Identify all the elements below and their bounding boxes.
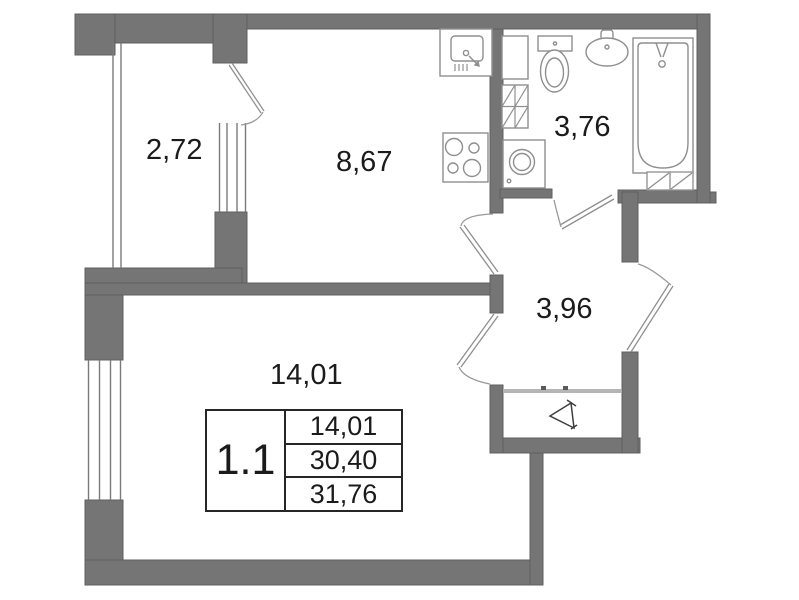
entrance-door bbox=[627, 264, 673, 352]
bathroom-area-label: 3,76 bbox=[554, 113, 610, 142]
wall-segment bbox=[85, 560, 543, 585]
living-room-window bbox=[89, 360, 121, 500]
kitchen-area-label: 8,67 bbox=[336, 148, 392, 177]
wall-segment bbox=[697, 14, 710, 203]
wall-segment bbox=[490, 438, 640, 453]
unit-area: 30,40 bbox=[286, 445, 401, 479]
wall-segment bbox=[500, 189, 552, 198]
unit-number: 1.1 bbox=[207, 411, 286, 510]
unit-areas-column: 14,01 30,40 31,76 bbox=[286, 411, 401, 510]
bathroom-door bbox=[554, 195, 614, 229]
wall-segment bbox=[530, 453, 543, 585]
wall-segment bbox=[710, 192, 716, 203]
bathtub bbox=[633, 38, 693, 173]
floor-plan: 2,72 8,67 3,76 3,96 14,01 1.1 14,01 30,4… bbox=[0, 0, 799, 600]
balcony-area-label: 2,72 bbox=[146, 136, 202, 165]
wall-segment bbox=[85, 268, 242, 283]
wall-segment bbox=[490, 275, 503, 313]
wardrobe-track bbox=[503, 386, 621, 391]
hallway-area-label: 3,96 bbox=[536, 295, 592, 324]
bathroom-sink bbox=[586, 30, 628, 66]
wall-segment bbox=[622, 192, 638, 262]
stove bbox=[443, 133, 488, 182]
living-room-area-label: 14,01 bbox=[270, 361, 343, 390]
duct-box bbox=[502, 36, 528, 79]
entrance-door-symbol bbox=[550, 400, 577, 429]
balcony-glazing bbox=[113, 43, 121, 268]
kitchen-sink bbox=[440, 29, 492, 76]
wall-segment bbox=[85, 283, 490, 295]
unit-total-area: 31,76 bbox=[286, 478, 401, 510]
balcony-window bbox=[220, 123, 246, 212]
vent-shaft bbox=[502, 85, 528, 128]
wall-segment bbox=[490, 385, 503, 453]
wall-segment bbox=[622, 352, 638, 453]
toilet bbox=[538, 36, 572, 92]
washing-machine bbox=[503, 140, 545, 188]
heated-towel-rail bbox=[647, 172, 693, 190]
living-room-door bbox=[457, 314, 498, 384]
kitchen-door bbox=[460, 214, 498, 274]
unit-info-table: 1.1 14,01 30,40 31,76 bbox=[205, 409, 403, 512]
wall-segment bbox=[75, 14, 115, 55]
unit-living-area: 14,01 bbox=[286, 411, 401, 445]
balcony-door bbox=[229, 63, 264, 125]
wall-segment bbox=[213, 14, 247, 63]
